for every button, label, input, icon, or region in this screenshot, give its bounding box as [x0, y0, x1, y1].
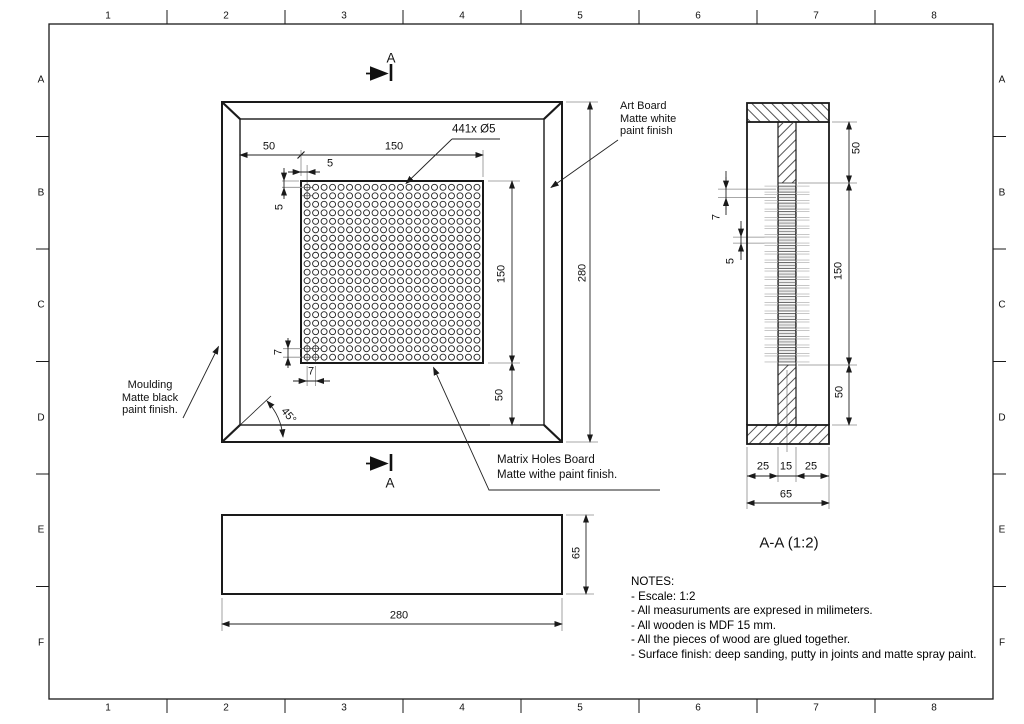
grid-column-label: 5: [577, 11, 583, 22]
annotation-moulding: Moulding Matte black paint finish.: [114, 379, 186, 417]
grid-column-label: 2: [223, 11, 229, 22]
drawing-sheet: 50 150 5 5 7 7 45° 150 50 280 441x Ø5 A …: [0, 0, 1024, 724]
grid-column-label: 6: [695, 703, 701, 714]
grid-row-label: D: [998, 412, 1005, 423]
side-view: [222, 515, 562, 594]
grid-column-label: 7: [813, 703, 819, 714]
dim-side-height: 65: [572, 547, 583, 559]
dim-front-overall: 280: [578, 264, 589, 282]
section-title: A-A (1:2): [759, 538, 818, 549]
hole-matrix: [302, 182, 480, 363]
grid-row-label: A: [38, 75, 45, 86]
note-item: - All wooden is MDF 15 mm.: [631, 619, 976, 634]
grid-column-label: 7: [813, 11, 819, 22]
dim-front-pitch-y: 7: [274, 349, 285, 355]
grid-column-label: 2: [223, 703, 229, 714]
grid-column-label: 6: [695, 11, 701, 22]
dim-front-pitch-x: 7: [308, 367, 314, 378]
dim-section-w1: 25: [757, 462, 769, 473]
section-cut-marker-top: [366, 64, 391, 81]
grid-row-label: F: [999, 637, 1005, 648]
front-view: [222, 102, 562, 442]
leader-lines: [183, 139, 660, 490]
grid-column-label: 1: [105, 11, 111, 22]
dim-front-hole-offset-y: 5: [275, 204, 286, 210]
dim-section-bottom: 50: [835, 386, 846, 398]
grid-row-label: B: [999, 187, 1006, 198]
grid-row-label: C: [37, 300, 44, 311]
note-item: - Surface finish: deep sanding, putty in…: [631, 648, 976, 663]
dim-section-mid: 150: [834, 262, 845, 280]
section-cut-marker-bottom: [366, 454, 391, 471]
annotation-matrix-board: Matrix Holes Board Matte withe paint fin…: [497, 453, 617, 483]
dim-front-board-width: 150: [385, 142, 403, 153]
grid-row-label: B: [38, 187, 45, 198]
notes-title: NOTES:: [631, 575, 976, 590]
grid-column-label: 4: [459, 11, 465, 22]
grid-column-label: 3: [341, 11, 347, 22]
cut-label-bottom: A: [385, 478, 394, 489]
grid-column-label: 3: [341, 703, 347, 714]
grid-column-label: 8: [931, 11, 937, 22]
cut-label-top: A: [386, 53, 395, 64]
grid-row-label: A: [999, 75, 1006, 86]
grid-row-label: E: [38, 525, 45, 536]
dim-front-margin-left: 50: [263, 142, 275, 153]
dim-front-board-height: 150: [497, 265, 508, 283]
dim-section-hole: 5: [726, 258, 737, 264]
dim-section-w3: 25: [805, 462, 817, 473]
dim-section-pitch: 7: [712, 214, 723, 220]
annotation-art-board: Art Board Matte white paint finish: [620, 100, 676, 138]
section-hole-bands: [765, 186, 810, 362]
grid-column-label: 5: [577, 703, 583, 714]
grid-column-label: 1: [105, 703, 111, 714]
note-item: - All measuruments are expresed in milim…: [631, 604, 976, 619]
grid-row-label: E: [999, 525, 1006, 536]
grid-row-label: F: [38, 637, 44, 648]
dim-side-width: 280: [390, 611, 408, 622]
dim-front-hole-offset-x: 5: [327, 159, 333, 170]
dim-front-margin-bottom: 50: [495, 389, 506, 401]
grid-column-label: 4: [459, 703, 465, 714]
dim-section-top: 50: [852, 142, 863, 154]
note-item: - All the pieces of wood are glued toget…: [631, 633, 976, 648]
general-notes: NOTES: - Escale: 1:2 - All measuruments …: [631, 575, 976, 663]
grid-column-label: 8: [931, 703, 937, 714]
hole-count-callout: 441x Ø5: [452, 125, 495, 136]
note-item: - Escale: 1:2: [631, 590, 976, 605]
dim-section-total: 65: [780, 490, 792, 501]
grid-row-label: D: [37, 412, 44, 423]
dim-section-w2: 15: [780, 462, 792, 473]
grid-row-label: C: [998, 300, 1005, 311]
